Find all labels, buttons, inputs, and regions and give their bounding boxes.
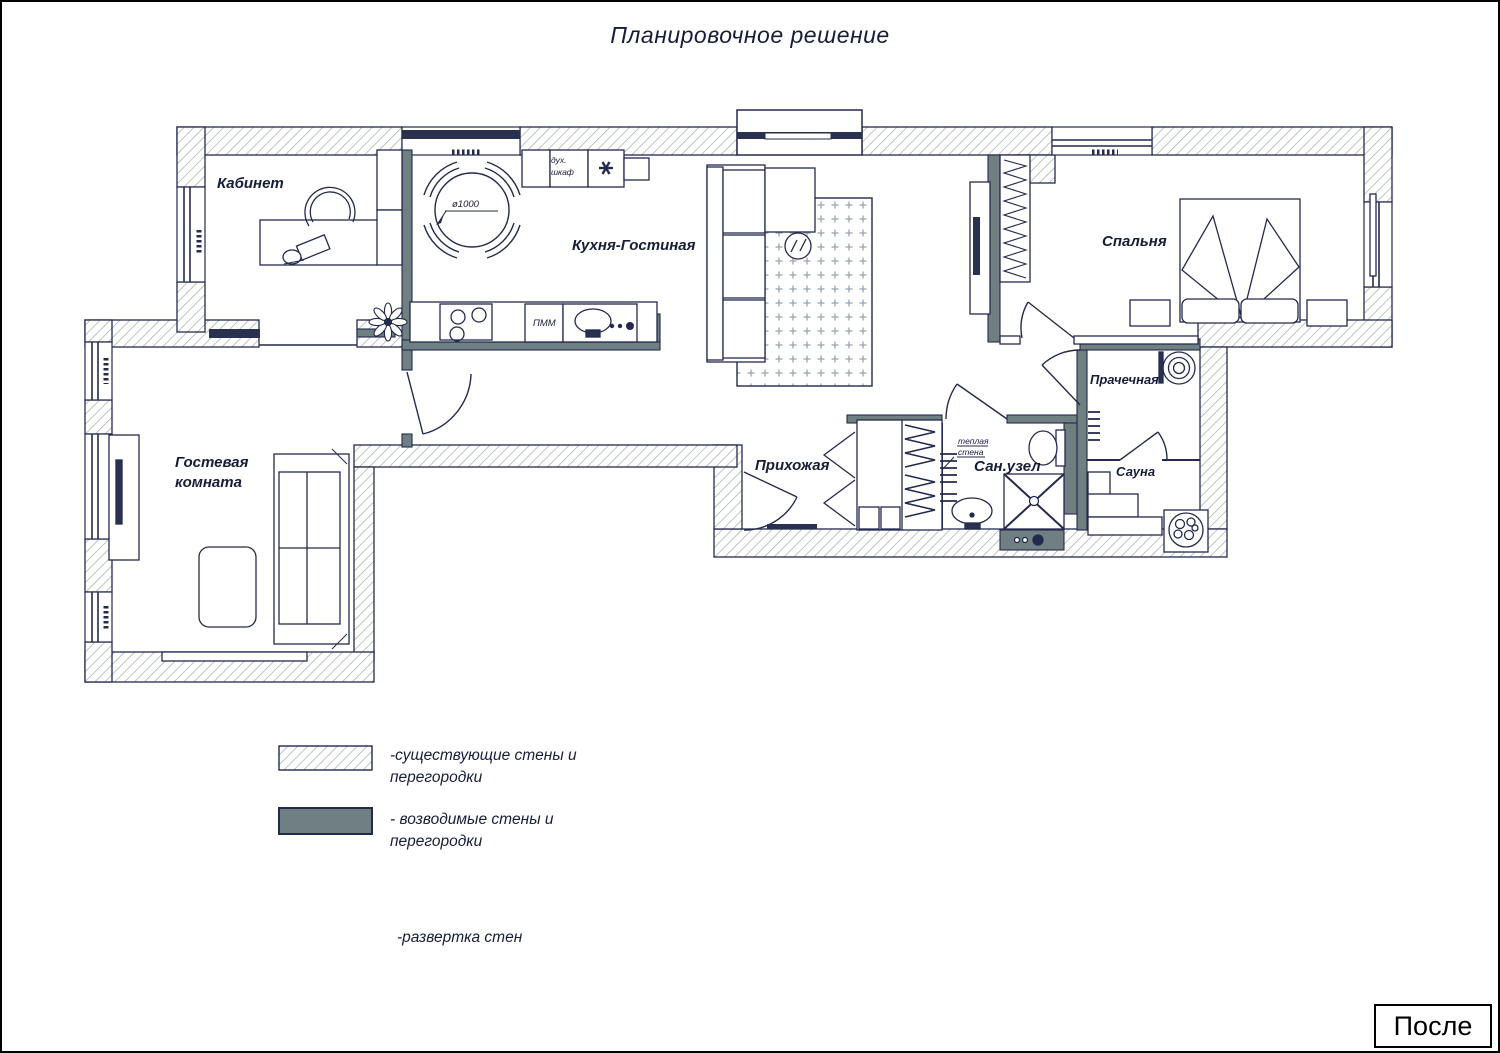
guest-sofa [274,449,349,649]
wardrobe [1000,155,1030,282]
table-diameter-label: ø1000 [452,199,480,210]
stage-label: После [1394,1011,1473,1042]
tv-console [109,435,139,560]
window-guest-3 [85,592,112,642]
legend-new-swatch [279,808,372,834]
label-sauna: Сауна [1116,464,1155,479]
pouf [199,547,256,627]
window-kitchen-top [402,127,520,155]
floor-plan: ø1000 дух. шкаф ПММ [2,2,1500,1053]
sauna-bench [1088,517,1162,535]
curtain [1370,194,1376,276]
towel-radiator-icon [1088,412,1100,440]
door-laundry [1042,350,1080,405]
window-kabinet-left [177,187,205,282]
oven-label-2: шкаф [551,167,574,177]
bed [1180,199,1300,323]
label-warm-wall-2: стена [958,447,984,457]
shower [1004,474,1064,529]
dining-table [424,162,520,258]
plant [369,303,407,341]
cabinet [377,150,402,210]
living-room [707,165,990,386]
legend-existing-text-2: перегородки [390,769,483,786]
sauna-stove [1164,510,1208,552]
door-entrance [744,472,817,530]
oven-label-1: дух. [551,155,566,165]
kabinet-furniture [260,150,402,265]
bedroom-bottom-wall [1000,336,1198,344]
sauna-bench [1088,494,1138,517]
window-bedroom-top [1052,127,1152,155]
doorsill [162,652,307,661]
nightstand [1307,300,1347,326]
window-bedroom-right [1364,202,1392,287]
balcony-door [737,110,862,155]
legend-existing-swatch [279,746,372,770]
window-guest-2 [85,434,112,539]
coffee-table [785,233,811,259]
nightstand [1130,300,1170,326]
cabinet [377,210,402,265]
label-warm-wall-1: теплая [958,436,989,446]
stage-box: После [1374,1004,1492,1048]
door-kabinet-corridor [407,372,471,434]
label-bathroom: Сан.узел [974,458,1041,475]
tv-unit [970,182,990,314]
legend-new-text-1: - возводимые стены и [390,811,554,828]
sofa-chaise [765,168,815,232]
door-sauna [1120,432,1167,460]
legend-elevation-text: -развертка стен [397,929,523,946]
hallway [824,420,942,530]
washer-door [1159,352,1163,383]
tv-icon [116,460,122,524]
label-guest-2: комната [175,474,242,491]
label-kabinet: Кабинет [217,175,284,192]
label-kitchen-living: Кухня-Гостиная [572,237,696,254]
tv-icon [973,217,980,275]
laundry [1088,352,1195,440]
bedroom [1000,155,1376,326]
label-bedroom: Спальня [1102,233,1167,250]
door-bathroom [946,384,1007,419]
label-guest-1: Гостевая [175,454,249,471]
legend: -существующие стены и перегородки - возв… [279,746,577,946]
window-guest-1 [85,342,112,400]
label-laundry: Прачечная [1090,372,1159,387]
dishwasher-label: ПММ [533,318,556,329]
bifold-door [824,480,855,526]
label-hallway: Прихожая [755,457,830,474]
drawing-sheet: Планировочное решение [0,0,1500,1053]
bath-sink [952,498,992,529]
legend-new-text-2: перегородки [390,833,483,850]
legend-existing-text-1: -существующие стены и [390,747,577,764]
door-bedroom [1021,302,1074,338]
